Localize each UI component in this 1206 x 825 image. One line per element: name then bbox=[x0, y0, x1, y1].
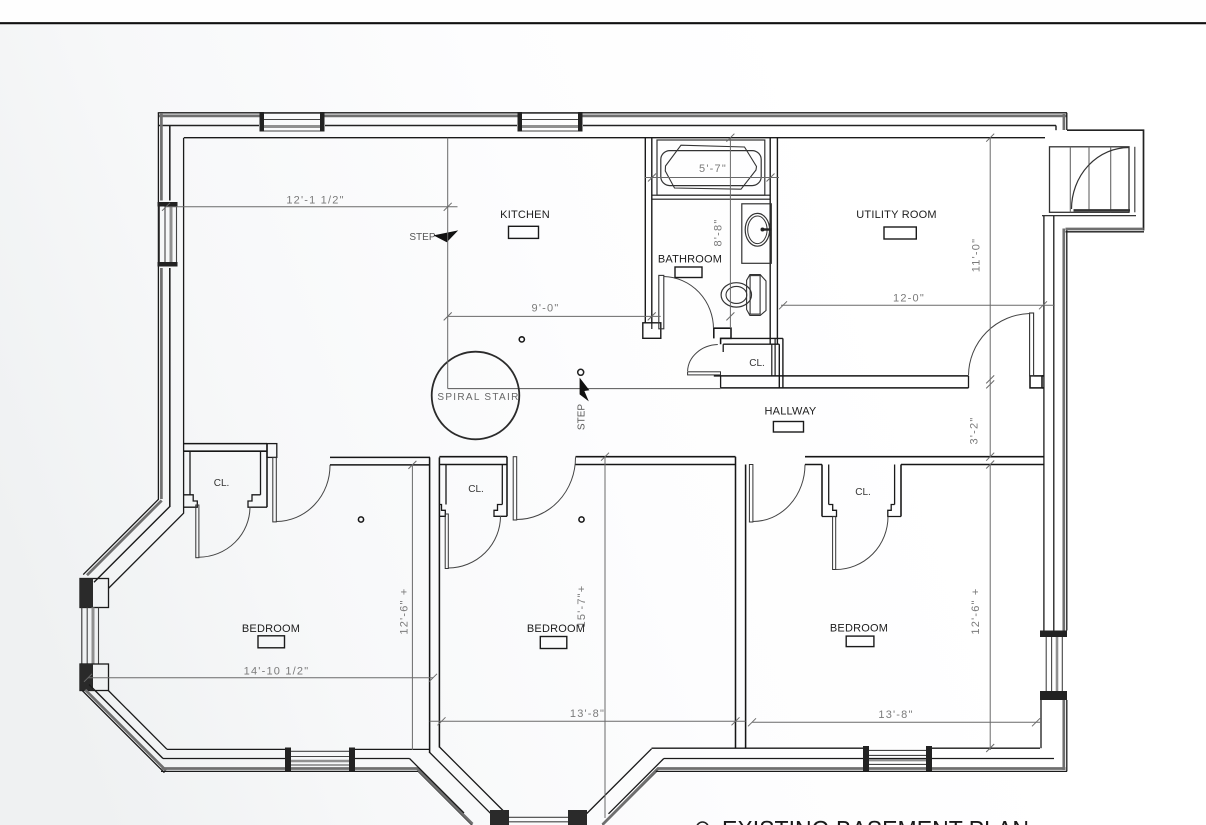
svg-text:5'-7": 5'-7" bbox=[699, 163, 727, 175]
svg-text:12'-1 1/2": 12'-1 1/2" bbox=[286, 195, 344, 207]
svg-text:SPIRAL STAIR: SPIRAL STAIR bbox=[437, 392, 519, 403]
svg-text:14'-10 1/2": 14'-10 1/2" bbox=[244, 666, 310, 678]
svg-text:12-0": 12-0" bbox=[893, 293, 925, 305]
svg-text:11'-0": 11'-0" bbox=[971, 238, 983, 272]
svg-text:BATHROOM: BATHROOM bbox=[658, 254, 722, 266]
svg-text:BEDROOM: BEDROOM bbox=[242, 623, 300, 635]
svg-text:8'-8": 8'-8" bbox=[713, 219, 725, 247]
svg-text:CL.: CL. bbox=[749, 358, 765, 369]
svg-text:BEDROOM: BEDROOM bbox=[830, 623, 888, 635]
svg-text:CL.: CL. bbox=[468, 484, 484, 495]
svg-text:12'-6" +: 12'-6" + bbox=[970, 587, 982, 634]
svg-text:CL.: CL. bbox=[214, 478, 230, 489]
svg-text:HALLWAY: HALLWAY bbox=[765, 406, 817, 418]
svg-text:STEP: STEP bbox=[577, 404, 588, 430]
svg-text:BEDROOM: BEDROOM bbox=[527, 623, 585, 635]
svg-text:CL.: CL. bbox=[855, 487, 871, 498]
svg-text:UTILITY ROOM: UTILITY ROOM bbox=[856, 209, 936, 221]
svg-text:12'-6" +: 12'-6" + bbox=[399, 587, 411, 634]
svg-text:STEP: STEP bbox=[409, 232, 435, 243]
svg-text:13'-8": 13'-8" bbox=[570, 708, 605, 720]
svg-text:EXISTING BASEMENT PLAN: EXISTING BASEMENT PLAN bbox=[722, 817, 1029, 825]
svg-text:3'-2": 3'-2" bbox=[969, 417, 981, 445]
svg-text:13'-8": 13'-8" bbox=[878, 709, 913, 721]
svg-text:KITCHEN: KITCHEN bbox=[500, 209, 550, 221]
svg-text:9'-0": 9'-0" bbox=[532, 303, 560, 315]
svg-text:15'-7"+: 15'-7"+ bbox=[576, 585, 588, 628]
